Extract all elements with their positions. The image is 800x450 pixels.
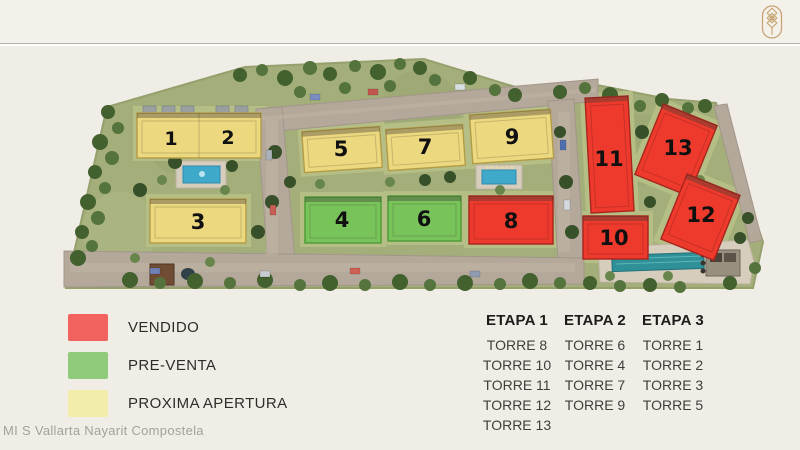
etapa-2-title: ETAPA 2: [556, 312, 634, 329]
building-8: 8: [469, 196, 553, 244]
building-5: 5: [302, 126, 383, 172]
building-label-4: 4: [335, 208, 350, 232]
site-plan-map: 1 2 3 5: [0, 44, 800, 306]
tower-item: TORRE 2: [634, 355, 712, 375]
building-label-11: 11: [594, 147, 623, 171]
legend-swatch-vendido-icon: [68, 314, 108, 341]
building-label-10: 10: [599, 226, 628, 250]
tower-item: TORRE 1: [634, 335, 712, 355]
tower-item: TORRE 9: [556, 395, 634, 415]
etapa-2-column: ETAPA 2 TORRE 6 TORRE 4 TORRE 7 TORRE 9: [556, 312, 634, 435]
tower-item: TORRE 7: [556, 375, 634, 395]
legend-swatch-proxima-icon: [68, 390, 108, 417]
legend-swatch-preventa-icon: [68, 352, 108, 379]
legend-item-preventa: PRE-VENTA: [68, 352, 288, 379]
building-1-2: 1 2: [137, 106, 261, 158]
etapa-3-title: ETAPA 3: [634, 312, 712, 329]
building-9: 9: [469, 109, 553, 164]
building-4: 4: [305, 197, 381, 243]
building-label-2: 2: [221, 127, 234, 149]
etapa-1-column: ETAPA 1 TORRE 8 TORRE 10 TORRE 11 TORRE …: [478, 312, 556, 435]
building-label-3: 3: [191, 210, 206, 234]
tower-item: TORRE 6: [556, 335, 634, 355]
legend-item-vendido: VENDIDO: [68, 314, 288, 341]
tower-item: TORRE 8: [478, 335, 556, 355]
legend-label: PRE-VENTA: [128, 357, 216, 374]
building-3: 3: [150, 199, 246, 243]
building-label-5: 5: [334, 137, 349, 161]
etapa-1-title: ETAPA 1: [478, 312, 556, 329]
building-7: 7: [386, 124, 466, 170]
building-11: 11: [585, 96, 634, 213]
tower-item: TORRE 10: [478, 355, 556, 375]
etapa-lists: ETAPA 1 TORRE 8 TORRE 10 TORRE 11 TORRE …: [478, 312, 712, 435]
header-bar: [0, 0, 800, 44]
legend-item-proxima-apertura: PROXIMA APERTURA: [68, 390, 288, 417]
building-10: 10: [583, 216, 648, 259]
building-label-8: 8: [504, 209, 519, 233]
tower-item: TORRE 3: [634, 375, 712, 395]
masterplan-slide: 1 2 3 5: [0, 0, 800, 450]
legend-label: PROXIMA APERTURA: [128, 395, 288, 412]
building-label-1: 1: [164, 128, 177, 150]
brand-emblem-icon: [760, 4, 784, 40]
tower-item: TORRE 12: [478, 395, 556, 415]
tower-item: TORRE 11: [478, 375, 556, 395]
building-label-7: 7: [418, 135, 433, 159]
tower-item: TORRE 5: [634, 395, 712, 415]
building-label-12: 12: [686, 203, 715, 227]
etapa-3-column: ETAPA 3 TORRE 1 TORRE 2 TORRE 3 TORRE 5: [634, 312, 712, 435]
building-label-13: 13: [663, 136, 692, 160]
legend-label: VENDIDO: [128, 319, 199, 336]
building-6: 6: [388, 196, 461, 241]
building-label-6: 6: [417, 207, 432, 231]
building-label-9: 9: [505, 125, 520, 149]
status-legend: VENDIDO PRE-VENTA PROXIMA APERTURA: [68, 314, 288, 428]
tower-item: TORRE 13: [478, 415, 556, 435]
tower-item: TORRE 4: [556, 355, 634, 375]
watermark-text: MI S Vallarta Nayarit Compostela: [3, 423, 204, 438]
